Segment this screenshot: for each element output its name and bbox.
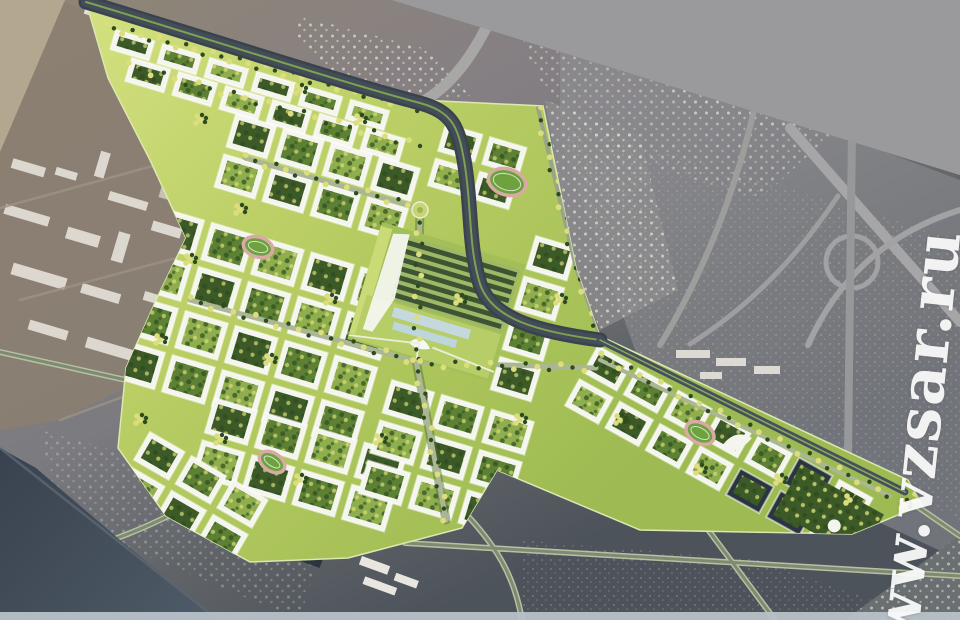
roundabout-center xyxy=(417,207,423,213)
photo-bottom-edge xyxy=(0,612,960,620)
masterplan-aerial-rendering xyxy=(0,0,960,620)
screenshot-canvas: www.vzsar.ru xyxy=(0,0,960,620)
